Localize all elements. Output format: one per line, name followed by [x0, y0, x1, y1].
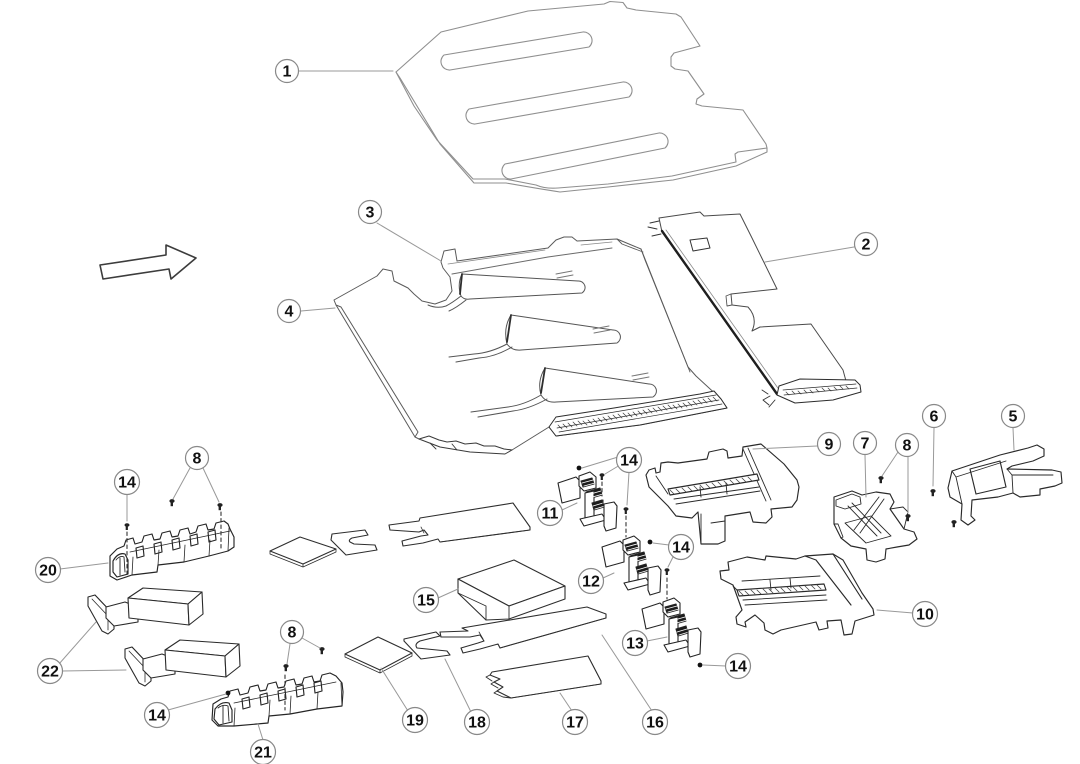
svg-text:16: 16: [646, 715, 664, 732]
svg-text:12: 12: [582, 574, 600, 591]
svg-text:11: 11: [542, 506, 559, 523]
svg-text:7: 7: [861, 436, 870, 453]
svg-text:17: 17: [566, 715, 584, 732]
svg-text:2: 2: [862, 237, 871, 254]
svg-text:4: 4: [285, 304, 294, 321]
svg-text:8: 8: [288, 625, 297, 642]
svg-text:6: 6: [930, 409, 939, 426]
svg-text:5: 5: [1009, 409, 1018, 426]
svg-text:14: 14: [672, 540, 690, 557]
svg-text:22: 22: [41, 664, 59, 681]
svg-text:8: 8: [903, 438, 912, 455]
svg-text:10: 10: [916, 607, 934, 624]
svg-text:14: 14: [620, 453, 638, 470]
svg-text:8: 8: [193, 451, 202, 468]
svg-text:19: 19: [406, 713, 424, 730]
svg-text:1: 1: [283, 64, 292, 81]
svg-text:14: 14: [148, 708, 166, 725]
svg-text:13: 13: [626, 636, 644, 653]
svg-text:9: 9: [825, 437, 834, 454]
svg-text:15: 15: [417, 593, 435, 610]
svg-text:3: 3: [366, 205, 375, 222]
svg-text:18: 18: [468, 715, 486, 732]
svg-text:14: 14: [118, 475, 136, 492]
svg-text:21: 21: [254, 745, 272, 762]
svg-text:20: 20: [39, 563, 57, 580]
svg-text:14: 14: [729, 659, 747, 676]
